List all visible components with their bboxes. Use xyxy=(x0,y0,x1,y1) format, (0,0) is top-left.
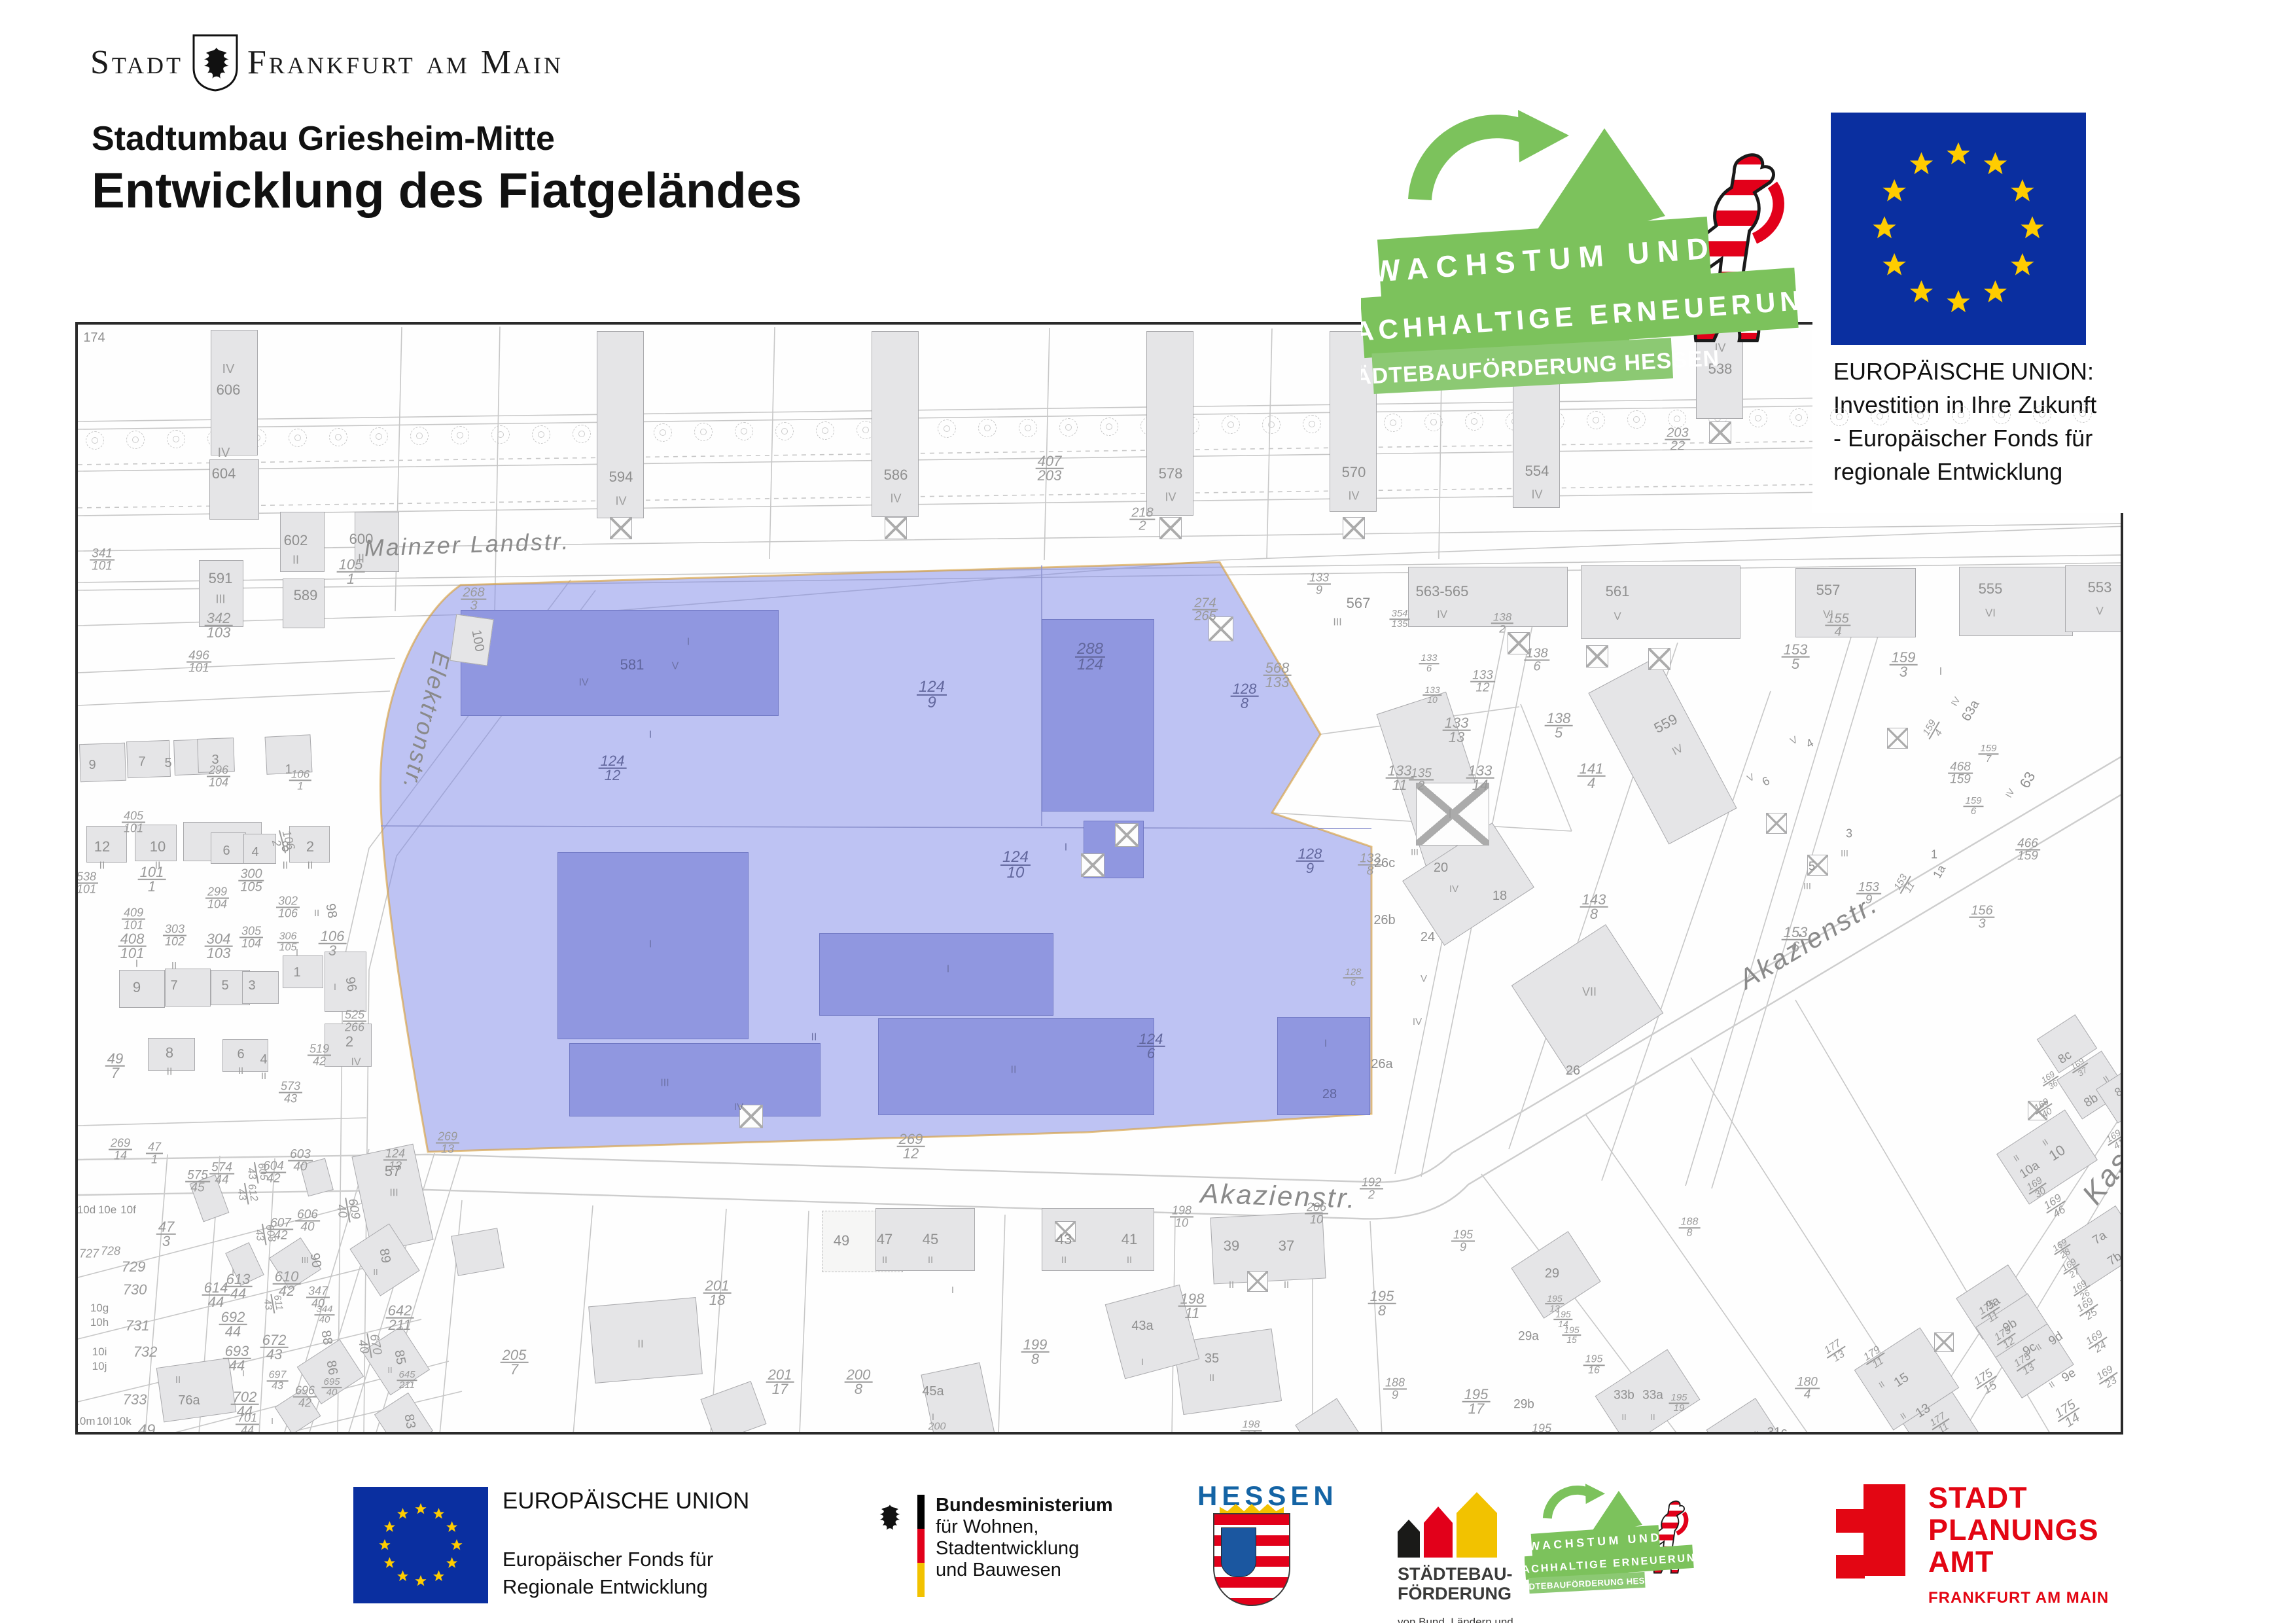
parcel-label: 69344 xyxy=(223,1345,251,1372)
parcel-label: 3 xyxy=(1846,829,1852,840)
footer-eu-logo: EUROPÄISCHE UNION Europäischer Fonds für… xyxy=(353,1483,851,1614)
parcel-label: II xyxy=(2102,1075,2111,1084)
parcel-label: 10d xyxy=(77,1205,96,1215)
parcel-label: 20322 xyxy=(1665,427,1690,453)
parcel-label: II xyxy=(292,555,299,566)
parcel-label: 1959 xyxy=(1451,1229,1475,1252)
ministry-line2: für Wohnen, Stadtentwicklung xyxy=(936,1516,1171,1560)
parcel-label: 602 xyxy=(284,534,308,547)
parcel-label: 86 xyxy=(325,1359,339,1376)
parcel-label: 407203 xyxy=(1036,455,1064,482)
parcel-label: 61143 xyxy=(262,1293,284,1315)
parcel-label: 35 xyxy=(1205,1353,1219,1364)
parcel-label: 2057 xyxy=(501,1349,529,1376)
parcel-label: 60442 xyxy=(261,1161,286,1185)
parcel-label: II xyxy=(314,909,319,918)
parcel-label: 645211 xyxy=(397,1370,417,1390)
parcel-label: 39 xyxy=(1224,1240,1239,1253)
footer-growth-logo xyxy=(1525,1482,1695,1596)
parcel-label: 7c xyxy=(2119,1273,2123,1290)
parcel-label: 20 xyxy=(1434,862,1448,874)
footer-funding-logo: STÄDTEBAU- FÖRDERUNG von Bund, Ländern u… xyxy=(1398,1489,1522,1620)
parcel-label: 15311 xyxy=(1892,871,1918,899)
parcel-label: I xyxy=(951,1286,954,1295)
parcel-label: 19517 xyxy=(1462,1388,1491,1416)
parcel-label: 1063 xyxy=(319,930,347,957)
parcel-label: 302106 xyxy=(276,895,300,918)
parcel-label: 557 xyxy=(1816,584,1841,597)
parcel-label: II xyxy=(1209,1374,1214,1383)
parcel-label: 10h xyxy=(90,1317,109,1328)
parcel-label: IV xyxy=(1531,490,1542,501)
parcel-label: 1804 xyxy=(1795,1377,1820,1401)
parcel-label: 61243 xyxy=(235,1181,259,1206)
parcel-label: I xyxy=(1939,666,1943,677)
parcel-label: 17514 xyxy=(2051,1397,2087,1433)
parcel-label: 10e xyxy=(98,1205,116,1215)
parcel-label: 13310 xyxy=(1422,686,1441,704)
parcel-label: II xyxy=(167,1068,173,1078)
parcel-label: 296104 xyxy=(207,764,230,787)
parcel-label: 19515 xyxy=(1562,1326,1581,1344)
planning-office-mark-icon xyxy=(1833,1484,1909,1582)
parcel-label: 591 xyxy=(209,572,233,585)
houses-icon xyxy=(1398,1489,1522,1558)
parcel-label: 497 xyxy=(105,1052,125,1080)
parcel-label: 1597 xyxy=(1978,744,1998,764)
parcel-label: 20117 xyxy=(766,1368,794,1396)
parcel-label: 26913 xyxy=(436,1131,459,1154)
parcel-label: 642211 xyxy=(386,1304,414,1332)
poster-page: WACHSTUM UND NACHHALTIGE ERNEUERUNG STÄD… xyxy=(0,0,2296,1623)
parcel-label: V xyxy=(1746,773,1756,784)
parcel-label: 405101 xyxy=(122,810,145,833)
parcel-label: 1286 xyxy=(1343,968,1363,988)
parcel-label: III xyxy=(660,1079,669,1089)
parcel-label: 1535 xyxy=(1782,643,1810,671)
parcel-label: I xyxy=(135,960,138,970)
parcel-label: I xyxy=(947,965,949,975)
parcel-label: 594 xyxy=(609,471,633,484)
cadastral-map: Mainzer Landstr.Elektronstr.Akazienstr.A… xyxy=(75,322,2123,1435)
parcel-label: 570 xyxy=(1342,466,1366,479)
parcel-label: III xyxy=(1803,882,1811,891)
parcel-label: 19519 xyxy=(1669,1393,1689,1413)
parcel-label: 47 xyxy=(877,1233,892,1246)
parcel-label: 538101 xyxy=(75,871,98,894)
parcel-label: 76a xyxy=(178,1395,200,1406)
parcel-label: 13314 xyxy=(1466,764,1494,792)
parcel-label: IV xyxy=(1670,743,1685,757)
parcel-label: 20610 xyxy=(1305,1202,1328,1224)
parcel-label: 581 xyxy=(620,658,645,671)
parcel-label: IV xyxy=(578,679,588,688)
parcel-label: 1414 xyxy=(1578,762,1606,790)
parcel-label: 83 xyxy=(402,1413,417,1429)
parcel-label: 63 xyxy=(2018,770,2038,790)
parcel-label: 305104 xyxy=(239,925,263,948)
hessen-inner-shield-icon xyxy=(1221,1527,1256,1577)
parcel-label: 19516 xyxy=(1583,1355,1605,1375)
parcel-label: 1352 xyxy=(1409,768,1434,793)
parcel-label: 4 xyxy=(251,846,258,858)
parcel-label: II xyxy=(811,1033,817,1043)
parcel-label: 559 xyxy=(1652,712,1680,735)
parcel-label: 9e xyxy=(2060,1367,2077,1384)
parcel-label: 19811 xyxy=(1178,1293,1207,1320)
planning-line3: AMT xyxy=(1928,1546,2099,1578)
parcel-label: 10i xyxy=(92,1347,107,1357)
parcel-label: I xyxy=(232,1268,234,1276)
parcel-label: 604 xyxy=(212,467,236,480)
parcel-label: 18 xyxy=(1492,890,1507,902)
parcel-label: II xyxy=(928,1256,933,1265)
parcel-label: 729 xyxy=(122,1260,146,1274)
parcel-label: 49 xyxy=(834,1234,849,1247)
parcel-label: 303102 xyxy=(163,923,186,946)
planning-line2: PLANUNGS xyxy=(1928,1514,2099,1546)
parcel-label: 1594 xyxy=(1920,717,1947,744)
parcel-label: 89 xyxy=(378,1247,392,1264)
parcel-label: 90 xyxy=(308,1252,323,1268)
parcel-label: 2182 xyxy=(1129,507,1155,533)
parcel-label: 563-565 xyxy=(1416,585,1469,598)
parcel-label: 19518 xyxy=(1530,1423,1553,1435)
parcel-label: II xyxy=(1878,1380,1886,1389)
parcel-label: II xyxy=(171,961,177,971)
parcel-label: 69642 xyxy=(293,1385,317,1408)
parcel-label: 60640 xyxy=(295,1209,320,1234)
parcel-label: 553 xyxy=(2088,581,2112,594)
parcel-label: 5 xyxy=(164,757,171,769)
frankfurt-eagle-shield-icon xyxy=(192,34,238,92)
parcel-label: I xyxy=(649,940,652,950)
parcel-label: 555 xyxy=(1979,582,2003,596)
planning-sub: FRANKFURT AM MAIN xyxy=(1928,1589,2109,1607)
parcel-label: 1382 xyxy=(1491,612,1513,633)
parcel-label: 1386 xyxy=(1524,648,1549,673)
parcel-label: II xyxy=(1284,1281,1289,1290)
footer-hessen-logo: HESSEN xyxy=(1197,1480,1315,1611)
parcel-label: II xyxy=(1127,1256,1132,1265)
parcel-label: IV xyxy=(222,363,235,375)
parcel-label: 288124 xyxy=(1075,642,1105,672)
parcel-label: 26c xyxy=(1374,857,1395,869)
parcel-label: 57 xyxy=(385,1165,400,1178)
footer-eu-sub-line1: Europäischer Fonds für xyxy=(503,1546,713,1573)
footer-eu-sub-line2: Regionale Entwicklung xyxy=(503,1573,713,1601)
ministry-line1: Bundesministerium xyxy=(936,1495,1113,1516)
parcel-label: 561 xyxy=(1606,585,1630,598)
parcel-label: II xyxy=(387,1366,392,1374)
eu-flag-icon xyxy=(1831,113,2086,345)
parcel-label: 731 xyxy=(126,1319,150,1332)
parcel-label: 24 xyxy=(1421,931,1435,943)
parcel-label: I xyxy=(1324,1040,1327,1050)
parcel-label: 33a xyxy=(1642,1389,1663,1400)
parcel-label: 17515 xyxy=(1970,1366,2002,1398)
parcel-label: 1958 xyxy=(1368,1290,1396,1317)
parcel-label: 730 xyxy=(123,1283,147,1296)
parcel-label: 26914 xyxy=(109,1137,132,1160)
parcel-label: 10j xyxy=(92,1361,107,1372)
parcel-label: 1249 xyxy=(917,680,947,710)
parcel-label: III xyxy=(1411,848,1419,857)
parcel-label: 16924 xyxy=(2083,1329,2113,1357)
parcel-label: I xyxy=(1065,844,1067,853)
parcel-label: 9 xyxy=(88,759,96,771)
parcel-label: 589 xyxy=(294,589,318,602)
parcel-label: I xyxy=(649,731,652,741)
parcel-label: II xyxy=(373,1268,378,1276)
parcel-label: 6 xyxy=(222,845,230,857)
parcel-label: 37 xyxy=(1279,1240,1294,1253)
footer-eu-title: EUROPÄISCHE UNION xyxy=(503,1488,749,1514)
parcel-label: 7a xyxy=(2091,1230,2108,1247)
parcel-label: 20118 xyxy=(703,1279,732,1307)
parcel-label: 12 xyxy=(94,840,110,853)
parcel-label: I xyxy=(1141,1358,1144,1367)
labels-layer: Mainzer Landstr.Elektronstr.Akazienstr.A… xyxy=(78,325,2121,1432)
parcel-label: 1554 xyxy=(1825,613,1850,639)
parcel-label: III xyxy=(215,594,225,605)
parcel-label: 606 xyxy=(217,383,241,397)
parcel-label: 26b xyxy=(1373,914,1395,926)
parcel-label: 10m xyxy=(75,1416,96,1427)
parcel-label: II xyxy=(1061,1256,1067,1265)
parcel-label: 60340 xyxy=(288,1149,313,1173)
parcel-label: 17911 xyxy=(1861,1344,1890,1373)
parcel-label: IV xyxy=(615,496,626,507)
parcel-label: 5 xyxy=(221,980,228,991)
parcel-label: 8b xyxy=(2082,1092,2100,1109)
parcel-label: V xyxy=(2096,606,2103,616)
footer-ministry-logo: Bundesministerium für Wohnen, Stadtentwi… xyxy=(870,1495,1171,1606)
parcel-label: 1593 xyxy=(1890,651,1918,679)
parcel-label: 274265 xyxy=(1192,597,1218,623)
parcel-label: 6 xyxy=(1761,775,1772,787)
parcel-label: 2008 xyxy=(845,1368,873,1396)
street-label: Elektronstr. xyxy=(400,650,453,793)
parcel-label: 7b xyxy=(2106,1251,2123,1268)
parcel-label: I xyxy=(1448,808,1452,820)
parcel-label: 468159 xyxy=(1948,762,1973,786)
growth-logo xyxy=(1361,105,1801,401)
parcel-label: II xyxy=(2013,1154,2021,1163)
parcel-label: 9d xyxy=(2047,1330,2064,1347)
parcel-label: VII xyxy=(1582,987,1597,998)
federal-eagle-icon xyxy=(870,1496,910,1539)
parcel-label: 304103 xyxy=(205,933,233,960)
city-logo-prefix: Stadt xyxy=(90,46,183,80)
street-label: Mainzer Landstr. xyxy=(364,530,571,559)
parcel-label: 568133 xyxy=(1263,662,1292,689)
parcel-label: 69540 xyxy=(321,1378,342,1397)
parcel-label: II xyxy=(283,862,289,872)
parcel-label: 7 xyxy=(170,980,177,991)
parcel-label: 43a xyxy=(1131,1320,1153,1332)
parcel-label: 98 xyxy=(324,902,338,919)
parcel-label: 85 xyxy=(393,1349,407,1365)
parcel-label: 732 xyxy=(133,1346,158,1359)
parcel-label: IV xyxy=(1449,885,1458,894)
parcel-label: IV xyxy=(1165,492,1176,503)
parcel-label: 96 xyxy=(344,976,358,992)
parcel-label: 26912 xyxy=(897,1133,925,1160)
parcel-label: 60940 xyxy=(334,1196,362,1224)
parcel-label: II xyxy=(238,1067,243,1076)
parcel-label: 67040 xyxy=(355,1331,383,1360)
parcel-label: 1889 xyxy=(1383,1377,1407,1400)
parcel-label: II xyxy=(1650,1414,1655,1421)
parcel-label: 15 xyxy=(1892,1371,1911,1389)
parcel-label: 567 xyxy=(1347,597,1371,610)
parcel-label: 1922 xyxy=(1360,1177,1383,1200)
parcel-label: 33b xyxy=(1614,1389,1634,1400)
parcel-label: 34440 xyxy=(314,1305,334,1325)
parcel-label: 10k xyxy=(113,1416,131,1427)
parcel-label: 2 xyxy=(306,840,314,853)
parcel-label: 4 xyxy=(1805,737,1816,749)
parcel-label: 1888 xyxy=(1679,1217,1701,1238)
parcel-label: 8a xyxy=(2113,1082,2123,1099)
parcel-label: 69244 xyxy=(219,1311,247,1338)
parcel-label: 19810 xyxy=(1170,1205,1193,1228)
parcel-label: 3 xyxy=(248,980,255,991)
funding-sub1: von Bund, Ländern und xyxy=(1398,1615,1522,1623)
parcel-label: 1539 xyxy=(1856,882,1881,906)
parcel-label: II xyxy=(1899,1412,1908,1421)
parcel-label: 300105 xyxy=(238,868,264,894)
parcel-label: II xyxy=(637,1339,643,1349)
planning-line1: STADT xyxy=(1928,1482,2099,1514)
parcel-label: 26 xyxy=(1566,1065,1580,1077)
parcel-label: 342103 xyxy=(205,612,233,639)
parcel-label: 1a xyxy=(1932,863,1947,880)
parcel-label: 10g xyxy=(90,1303,109,1313)
parcel-label: 1 xyxy=(1931,849,1937,861)
parcel-label: 1288 xyxy=(1231,683,1259,710)
parcel-label: 1011 xyxy=(138,866,166,893)
parcel-label: 1336 xyxy=(1419,654,1439,673)
parcel-label: II xyxy=(1011,1066,1017,1076)
parcel-label: 10f xyxy=(120,1205,136,1215)
parcel-label: 408101 xyxy=(118,933,147,960)
parcel-label: II xyxy=(99,862,105,872)
parcel-label: 2 xyxy=(345,1035,353,1048)
parcel-label: II xyxy=(1754,1431,1758,1435)
funding-line2: FÖRDERUNG xyxy=(1398,1584,1522,1603)
parcel-label: 1536 xyxy=(1782,926,1810,954)
parcel-label: 16946 xyxy=(2041,1192,2072,1222)
footer-planning-logo: STADT PLANUNGS AMT FRANKFURT AM MAIN xyxy=(1833,1482,2200,1619)
parcel-label: IV xyxy=(890,493,901,505)
parcel-label: 2683 xyxy=(461,587,486,613)
parcel-label: 57545 xyxy=(185,1170,210,1194)
parcel-label: 13313 xyxy=(1443,717,1471,744)
parcel-label: 6 xyxy=(237,1048,244,1060)
parcel-label: 299104 xyxy=(205,886,229,909)
street-label: Akazienstr. xyxy=(1200,1181,1357,1212)
city-logo: Stadt Frankfurt am Main xyxy=(90,34,563,92)
parcel-label: 19813 xyxy=(1241,1420,1262,1435)
parcel-label: 12410 xyxy=(1000,850,1031,880)
parcel-label: 67243 xyxy=(260,1334,289,1361)
parcel-label: 471 xyxy=(146,1141,163,1164)
funding-line1: STÄDTEBAU- xyxy=(1398,1564,1522,1584)
parcel-label: 29b xyxy=(1513,1399,1534,1410)
parcel-label: 43 xyxy=(1056,1233,1072,1246)
parcel-label: 1289 xyxy=(1296,847,1324,875)
parcel-label: 100 xyxy=(470,629,486,652)
parcel-label: 29a xyxy=(1518,1330,1539,1342)
parcel-label: 41 xyxy=(1122,1233,1137,1246)
parcel-label: II xyxy=(2048,1380,2057,1389)
parcel-label: I xyxy=(271,1418,274,1425)
parcel-label: 341101 xyxy=(90,548,115,573)
parcel-label: 12412 xyxy=(599,755,627,782)
page-title: Entwicklung des Fiatgeländes xyxy=(92,162,802,219)
parcel-label: II xyxy=(308,862,313,872)
parcel-label: 5 xyxy=(1809,861,1815,872)
parcel-label: 174 xyxy=(83,332,105,344)
parcel-label: IV xyxy=(1950,696,1962,707)
parcel-label: IV xyxy=(734,1103,743,1112)
parcel-label: 60742 xyxy=(268,1218,293,1242)
parcel-label: II xyxy=(1229,1281,1234,1290)
parcel-label: 409101 xyxy=(122,907,145,930)
parcel-label: V xyxy=(1614,611,1621,622)
parcel-label: IV xyxy=(1413,1018,1422,1027)
parcel-label: II xyxy=(882,1256,887,1265)
parcel-label: 727 xyxy=(79,1249,99,1260)
parcel-label: V xyxy=(1421,974,1427,984)
parcel-label: 16936 xyxy=(2038,1069,2062,1094)
parcel-label: 26a xyxy=(1371,1058,1392,1070)
parcel-label: II xyxy=(261,1072,266,1081)
parcel-label: 578 xyxy=(1159,467,1183,480)
parcel-label: III xyxy=(1841,849,1848,858)
parcel-label: 8 xyxy=(166,1046,173,1060)
parcel-label: III xyxy=(389,1189,398,1199)
ministry-line3: und Bauwesen xyxy=(936,1560,1171,1581)
parcel-label: 88 xyxy=(319,1329,334,1346)
parcel-label: 70144 xyxy=(236,1412,259,1435)
parcel-label: III xyxy=(302,1257,309,1264)
parcel-label: II xyxy=(175,1376,181,1385)
parcel-label: 473 xyxy=(156,1221,176,1248)
footer-eu-sub: Europäischer Fonds für Regionale Entwick… xyxy=(503,1546,713,1601)
parcel-label: 29 xyxy=(1545,1268,1559,1279)
parcel-label: 1 xyxy=(293,967,300,978)
parcel-label: 1385 xyxy=(1545,712,1573,740)
parcel-label: 63a xyxy=(1960,698,1982,723)
parcel-label: 16940 xyxy=(2031,1096,2057,1121)
parcel-label: 525266 xyxy=(343,1009,366,1032)
parcel-label: III xyxy=(1333,618,1341,628)
parcel-label: 57343 xyxy=(279,1080,302,1103)
parcel-label: 496101 xyxy=(186,651,211,675)
parcel-label: 9 xyxy=(133,981,141,994)
city-logo-name: Frankfurt am Main xyxy=(247,46,563,80)
parcel-label: IV xyxy=(2004,787,2016,799)
parcel-label: 7 xyxy=(138,756,145,768)
parcel-label: 466159 xyxy=(2015,838,2040,863)
footer-eu-flag-icon xyxy=(353,1487,488,1603)
parcel-label: 1339 xyxy=(1307,572,1331,595)
parcel-label: 69743 xyxy=(267,1370,289,1391)
parcel-label: 45 xyxy=(923,1233,938,1246)
